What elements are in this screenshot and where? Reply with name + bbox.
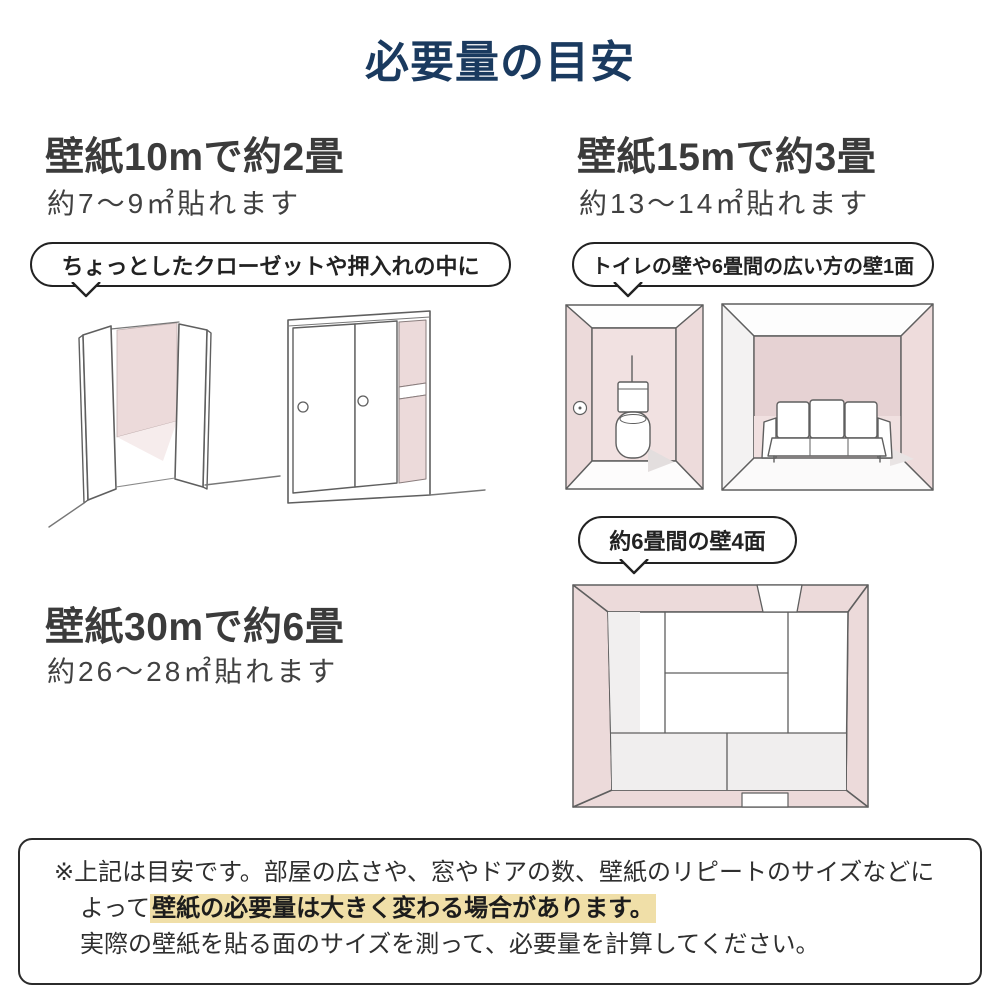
footnote-box: ※上記は目安です。部屋の広さや、窓やドアの数、壁紙のリピートのサイズなどに よっ… <box>18 838 982 985</box>
closet-illustrations <box>45 295 500 535</box>
section-10m-subheading: 約7～9㎡貼れます <box>47 182 301 222</box>
speech-bubble-toilet-wall-label: トイレの壁や6畳間の広い方の壁1面 <box>592 250 914 279</box>
footnote-line-3: 実際の壁紙を貼る面のサイズを測って、必要量を計算してください。 <box>54 927 952 963</box>
sliding-closet-illustration <box>288 311 485 503</box>
section-10m-heading: 壁紙10mで約2畳 <box>45 126 344 182</box>
speech-bubble-closet-label: ちょっとしたクローゼットや押入れの中に <box>61 249 479 281</box>
toilet-room-illustration <box>566 305 703 489</box>
footnote-line-2: よって壁紙の必要量は大きく変わる場合があります。 <box>54 891 952 927</box>
tatami-room-topview-illustration <box>570 580 872 812</box>
living-room-illustration <box>722 304 933 490</box>
speech-bubble-closet: ちょっとしたクローゼットや押入れの中に <box>30 242 511 287</box>
speech-bubble-toilet-wall: トイレの壁や6畳間の広い方の壁1面 <box>572 242 934 287</box>
section-15m-heading: 壁紙15mで約3畳 <box>577 126 876 182</box>
wallpaper-quantity-infographic: 必要量の目安 壁紙10mで約2畳 約7～9㎡貼れます ちょっとしたクローゼットや… <box>0 0 1000 1000</box>
section-30m-heading: 壁紙30mで約6畳 <box>45 596 344 652</box>
speech-bubble-tail-icon <box>612 282 644 298</box>
open-closet-illustration <box>49 322 280 527</box>
speech-bubble-6tatami-label: 約6畳間の壁4面 <box>609 524 765 556</box>
section-15m-subheading: 約13～14㎡貼れます <box>579 182 870 222</box>
footnote-line-1: ※上記は目安です。部屋の広さや、窓やドアの数、壁紙のリピートのサイズなどに <box>54 855 952 891</box>
speech-bubble-6tatami: 約6畳間の壁4面 <box>578 516 797 564</box>
room-illustrations <box>560 298 940 498</box>
speech-bubble-tail-icon <box>618 559 650 575</box>
section-30m-subheading: 約26～28㎡貼れます <box>47 650 338 690</box>
page-title: 必要量の目安 <box>0 26 1000 90</box>
footnote-highlight: 壁紙の必要量は大きく変わる場合があります。 <box>150 894 656 923</box>
